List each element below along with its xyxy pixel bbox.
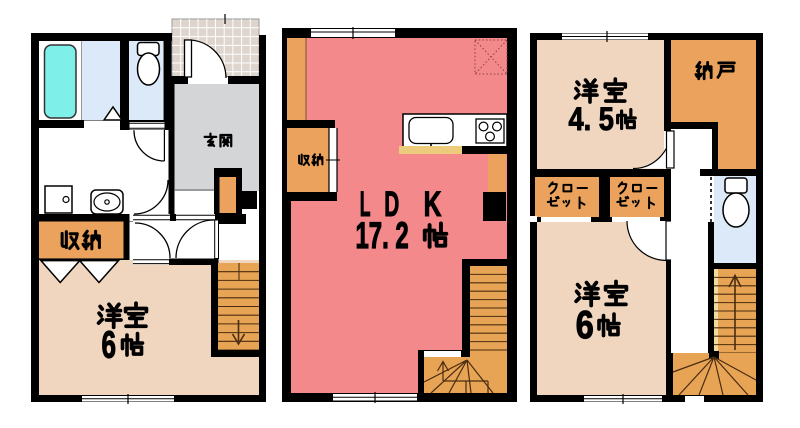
svg-text:K: K bbox=[424, 185, 442, 224]
svg-text:6: 6 bbox=[102, 325, 117, 367]
svg-text:17. 2: 17. 2 bbox=[356, 215, 409, 256]
svg-text:6: 6 bbox=[576, 304, 594, 347]
svg-text:4. 5: 4. 5 bbox=[569, 101, 614, 137]
